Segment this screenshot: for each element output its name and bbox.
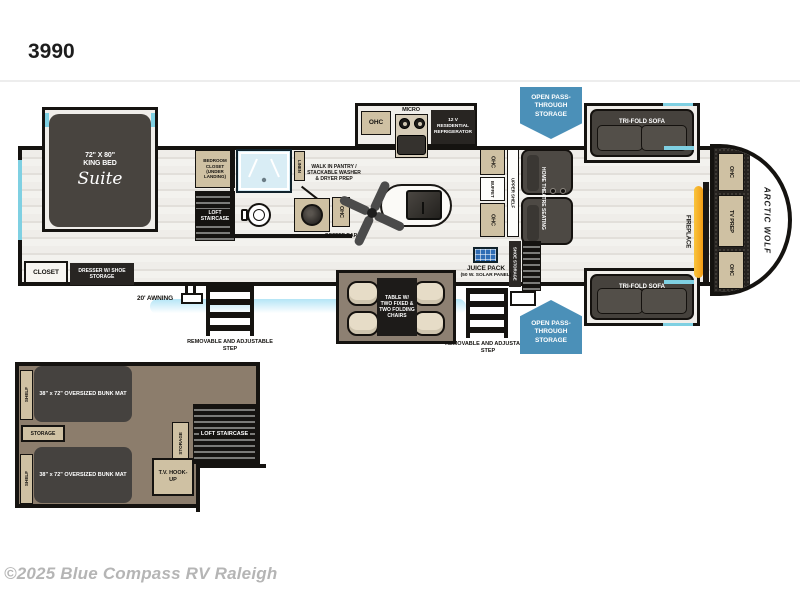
dresser: DRESSER W/ SHOE STORAGE [70,263,134,285]
upper-shelf-label: UPPER SHELF [510,178,515,208]
bunk-mat-top: 38" x 72" OVERSIZED BUNK MAT [34,366,132,422]
buffet-ohc-top: OHC [480,149,505,175]
dining-table-label: TABLE W/ TWO FIXED & TWO FOLDING CHAIRS [379,295,415,319]
bedroom-loft-staircase-label: LOFT STAIRCASE [196,209,234,223]
loft-shelf-bottom: SHELF [20,454,33,504]
awning-label: 20' AWNING [137,295,173,302]
sofa-top-label: TRI-FOLD SOFA [592,119,692,125]
cap-ohc-top: OHC [718,153,744,191]
tv-hookup-label: T.V. HOOK-UP [156,470,190,483]
bed-slide: 72" X 80" KING BED Suite [42,107,158,232]
micro-label: MICRO [394,106,428,114]
dining-chair [347,311,379,336]
dining-chair [413,311,445,336]
fireplace-glow [694,186,703,278]
dining-chair [413,281,445,306]
brand-logo: ARCTIC WOLF [756,162,778,278]
bath-wall-left [230,150,234,238]
brand-logo-text: ARCTIC WOLF [763,187,772,254]
pass-through-storage-top-label: OPEN PASS-THROUGH STORAGE [520,94,582,139]
buffet-label: BUFFET [490,181,495,198]
micro-text: MICRO [402,107,420,113]
copyright-watermark: ©2025 Blue Compass RV Raleigh [4,564,277,584]
loft-shelf-bottom-label: SHELF [24,471,30,486]
bunk-mat-bottom: 38" x 72" OVERSIZED BUNK MAT [34,447,132,503]
shower [236,149,292,193]
bed-suite-script: Suite [78,169,123,189]
front-cap: OHC TV PREP OHC ARCTIC WOLF [710,144,792,296]
upper-shelf: UPPER SHELF [507,149,519,237]
cap-ohc-bottom-label: OHC [728,264,734,276]
bedroom-closet-label: BEDROOM CLOSET (UNDER LANDING) [197,158,233,180]
cupholder-icon [550,188,556,194]
linen-label: LINEN [297,160,302,173]
toilet-icon [241,201,273,229]
bed-type-label: KING BED [83,160,116,168]
bed-size-label: 72" X 80" [85,152,115,160]
left-step-label-wrap: REMOVABLE AND ADJUSTABLE STEP [180,338,280,354]
loft-notch [196,464,266,512]
divider-line [0,80,800,82]
theatre-seating-label: HOME THEATRE SEATING [540,167,546,230]
buffet-ohc-top-label: OHC [489,156,495,168]
refrigerator-label: 12 V RESIDENTIAL REFRIGERATOR [432,118,474,135]
sofa-bottom-label: TRI-FOLD SOFA [592,284,692,290]
loft-storage-between-label: STORAGE [31,431,56,437]
sofa-slide-top: TRI-FOLD SOFA [584,103,700,163]
kitchen-ohc-label: OHC [369,119,383,126]
closet-label: CLOSET [33,269,59,276]
buffet-ohc-bottom: OHC [480,203,505,237]
kitchen-ohc: OHC [361,111,391,135]
dining-table: TABLE W/ TWO FIXED & TWO FOLDING CHAIRS [377,278,417,336]
sink-icon [301,204,323,226]
bunk-mat-bottom-label: 38" x 72" OVERSIZED BUNK MAT [39,472,126,479]
range-stove-icon [395,114,428,158]
cap-ohc-bottom: OHC [718,251,744,289]
awning-label-wrap: 20' AWNING [130,293,180,305]
sofa-bottom-window [663,323,693,326]
table-slide: TABLE W/ TWO FIXED & TWO FOLDING CHAIRS [336,270,456,344]
loft-shelf-top: SHELF [20,370,33,420]
linen-cabinet: LINEN [294,151,305,181]
island-sink-icon [406,190,442,220]
loft-shelf-top-label: SHELF [24,387,30,402]
loft-storage-side-label: STORAGE [178,432,184,455]
solar-panel-icon [473,247,498,263]
buffet: BUFFET [480,177,505,201]
awning-bracket-icon [181,282,205,306]
pass-through-storage-bottom: OPEN PASS-THROUGH STORAGE [520,300,582,354]
kitchen-slide: OHC MICRO 12 V RESIDENTIAL REFRIGERATOR [355,103,477,147]
bath-vanity [294,198,330,232]
floorplan-page: 3990 OHC TV PREP OHC ARCTIC WOLF 72" X 8… [0,0,800,600]
cap-tv-prep: TV PREP [718,195,744,247]
bedroom-closet-under-landing: BEDROOM CLOSET (UNDER LANDING) [195,150,235,188]
juice-pack-sub: (50 W. SOLAR PANEL) [461,273,512,279]
entry-landing [510,291,536,306]
fireplace-unit [703,182,709,282]
pass-through-storage-top: OPEN PASS-THROUGH STORAGE [520,87,582,139]
bottom-wall-window [664,280,694,284]
fireplace-label-wrap: FIREPLACE [681,186,693,278]
loft-staircase: LOFT STAIRCASE [193,404,256,464]
bedroom-loft-staircase: LOFT STAIRCASE [195,191,235,241]
refrigerator: 12 V RESIDENTIAL REFRIGERATOR [431,110,475,144]
right-entry-steps [466,288,508,338]
bed-window-right [151,113,155,127]
cupholder-icon [560,188,566,194]
rear-window [18,160,22,240]
left-step-label: REMOVABLE AND ADJUSTABLE STEP [180,339,280,352]
bunk-mat-top-label: 38" x 72" OVERSIZED BUNK MAT [39,391,126,398]
dresser-label: DRESSER W/ SHOE STORAGE [71,268,133,280]
shower-icon [238,151,290,191]
juice-pack-sub-wrap: (50 W. SOLAR PANEL) [440,272,532,280]
cap-tv-prep-label: TV PREP [728,210,734,233]
cap-ohc-top-label: OHC [728,166,734,178]
loft-storage-between: STORAGE [21,425,65,442]
closet: CLOSET [24,261,68,284]
ceiling-fan-icon [338,179,406,247]
top-wall-window [664,146,694,150]
buffet-ohc-bottom-label: OHC [489,214,495,226]
king-bed: 72" X 80" KING BED Suite [49,114,151,227]
model-number: 3990 [28,40,75,64]
left-entry-steps [206,286,254,336]
theatre-seating-label-wrap: HOME THEATRE SEATING [536,158,550,238]
tv-hookup: T.V. HOOK-UP [152,458,194,496]
pass-through-storage-bottom-label: OPEN PASS-THROUGH STORAGE [520,320,582,354]
dining-chair [347,281,379,306]
loft-staircase-label: LOFT STAIRCASE [199,430,250,439]
sofa-top-window [663,103,693,106]
fireplace-label: FIREPLACE [684,215,691,248]
